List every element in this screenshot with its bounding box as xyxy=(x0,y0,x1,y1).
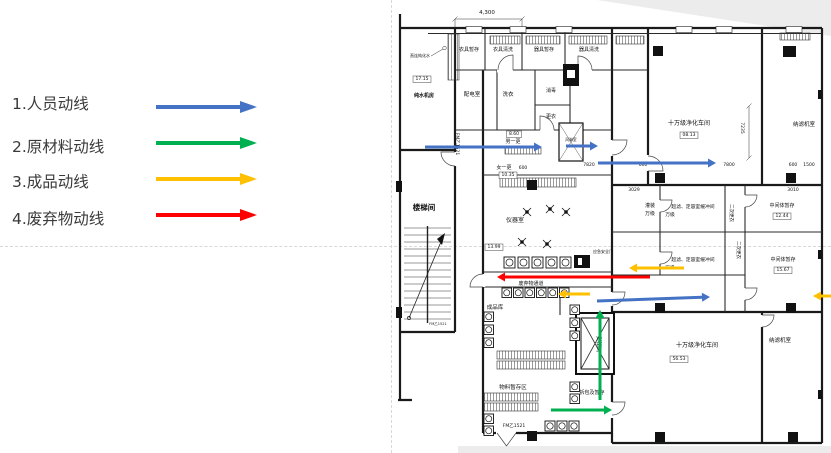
column-pilaster xyxy=(655,432,665,442)
red-flow-arrowhead xyxy=(497,273,505,282)
column-pilaster xyxy=(788,432,798,442)
column-pilaster xyxy=(396,181,402,192)
plan-label: 7235 xyxy=(739,122,745,134)
plan-label: 直连纯化水 xyxy=(410,52,430,58)
plan-label: 灌装 xyxy=(645,202,655,209)
column-pilaster xyxy=(818,390,822,399)
legend-item-personnel: 1.人员动线 xyxy=(12,92,89,114)
plan-label: 56.53 xyxy=(673,356,686,362)
plan-label: 器具暂存 xyxy=(534,46,554,53)
plan-label: 中间体暂存 xyxy=(770,256,795,263)
stairs-icon xyxy=(404,226,451,323)
plan-label: 废弃物通道 xyxy=(518,280,543,287)
column-pilaster xyxy=(818,90,822,99)
plan-label: FM乙1521 xyxy=(454,133,461,156)
plan-label: 男一更 xyxy=(505,139,520,145)
plan-label: 衣具暂存 xyxy=(459,46,479,53)
plan-label: 8.60 xyxy=(509,131,519,137)
plan-label: 中间体暂存 xyxy=(769,202,794,209)
raw-material-flow-arrow-icon xyxy=(154,136,258,150)
plan-label: 13.99 xyxy=(488,244,501,250)
finished-product-flow-arrow-icon xyxy=(154,172,258,186)
chair-icon xyxy=(562,208,570,216)
plan-label: 风淋室 xyxy=(565,137,577,142)
legend-item-finished-product: 3.成品动线 xyxy=(12,170,89,192)
column-pilaster xyxy=(786,173,796,183)
column-pilaster xyxy=(396,307,402,318)
plan-label: 纯水机房 xyxy=(414,92,434,99)
yellow-flow-arrowhead xyxy=(813,292,821,301)
column-pilaster xyxy=(818,250,822,259)
outer-walls xyxy=(398,14,822,443)
plan-label: 洗衣 xyxy=(502,90,514,98)
column-pilaster xyxy=(785,47,795,57)
plan-label: 1500 xyxy=(803,162,815,168)
air-shower-icon xyxy=(559,123,583,161)
plan-label: 应急安全门 xyxy=(593,248,613,254)
freight-elevator-icon xyxy=(576,313,614,374)
plan-label: 万级 xyxy=(665,211,675,218)
plan-label: FM乙1521 xyxy=(503,422,526,429)
column-pilaster xyxy=(527,180,537,190)
plan-label: 3029 xyxy=(628,187,640,193)
plan-label: 7800 xyxy=(723,162,735,168)
plan-label: 二次更衣 xyxy=(735,241,742,259)
column-pilaster xyxy=(655,173,665,183)
bench-rack-icons xyxy=(448,33,810,411)
plan-label: 成品库 xyxy=(487,303,504,311)
blue-flow-arrowhead xyxy=(708,159,716,168)
plan-label: 超滤、定容室缓冲间 xyxy=(671,203,714,210)
plan-label: 万级 xyxy=(645,210,655,217)
plan-label: 二次更衣 xyxy=(728,204,735,222)
plan-label: 08.13 xyxy=(683,132,696,138)
plan-label: 器具清洗 xyxy=(579,46,599,53)
plan-label: 更衣 xyxy=(546,113,556,120)
column-pilaster xyxy=(527,431,537,441)
chair-icon xyxy=(523,208,531,216)
plan-label: 纳滤机室 xyxy=(793,120,816,128)
legend-item-waste: 4.废弃物动线 xyxy=(12,207,104,229)
plan-label: 物料暂存区 xyxy=(499,383,527,391)
bottom-shade-strip xyxy=(458,446,831,453)
blue-flow-arrowhead xyxy=(702,293,710,302)
column-pilaster xyxy=(655,303,665,313)
plan-label: 仪器室 xyxy=(506,216,524,224)
plan-label: 女一更 xyxy=(496,164,511,171)
plan-label: 3010 xyxy=(787,187,799,193)
slide-canvas: 1.人员动线 2.原材料动线 3.成品动线 4.废弃物动线 xyxy=(0,0,831,453)
plan-label: 楼梯间 xyxy=(413,202,436,212)
column-pilaster xyxy=(786,303,796,313)
plan-label: 衣具清洗 xyxy=(493,46,513,53)
plan-label: 600 xyxy=(789,162,798,168)
column-pilaster xyxy=(653,46,663,56)
floor-plan-svg: 4,300直连纯化水17.15纯水机房衣具暂存衣具清洗器具暂存器具清洗配电室洗衣… xyxy=(395,0,831,453)
plan-label: 10.35 xyxy=(502,172,515,178)
yellow-flow-arrowhead xyxy=(629,264,637,273)
plan-label: 消毒 xyxy=(546,87,556,94)
plan-label: 7820 xyxy=(583,162,595,168)
plan-label: 超滤、定容室缓冲间 xyxy=(671,256,714,263)
plan-label: 配电室 xyxy=(464,90,481,98)
plan-label: 十万级净化车间 xyxy=(676,341,718,349)
plan-label: 4,300 xyxy=(479,10,495,16)
chair-icon xyxy=(543,240,551,248)
waste-flow-arrow-icon xyxy=(154,208,258,222)
plan-label: 十万级净化车间 xyxy=(668,119,710,127)
plan-label: 纳滤机室 xyxy=(769,336,792,344)
legend-item-raw-material: 2.原材料动线 xyxy=(12,135,104,157)
plan-label: 12.44 xyxy=(776,213,789,219)
plan-label: 600 xyxy=(519,165,528,171)
plan-label: FM乙1521 xyxy=(429,321,446,326)
plan-label: 17.15 xyxy=(416,76,429,82)
chair-icon xyxy=(518,238,526,246)
personnel-flow-arrow-icon xyxy=(154,100,258,114)
chair-icon xyxy=(546,205,554,213)
plan-label: 15.67 xyxy=(777,267,790,273)
vertical-reference-line xyxy=(391,0,392,453)
blue-flow-arrowhead xyxy=(590,142,598,151)
